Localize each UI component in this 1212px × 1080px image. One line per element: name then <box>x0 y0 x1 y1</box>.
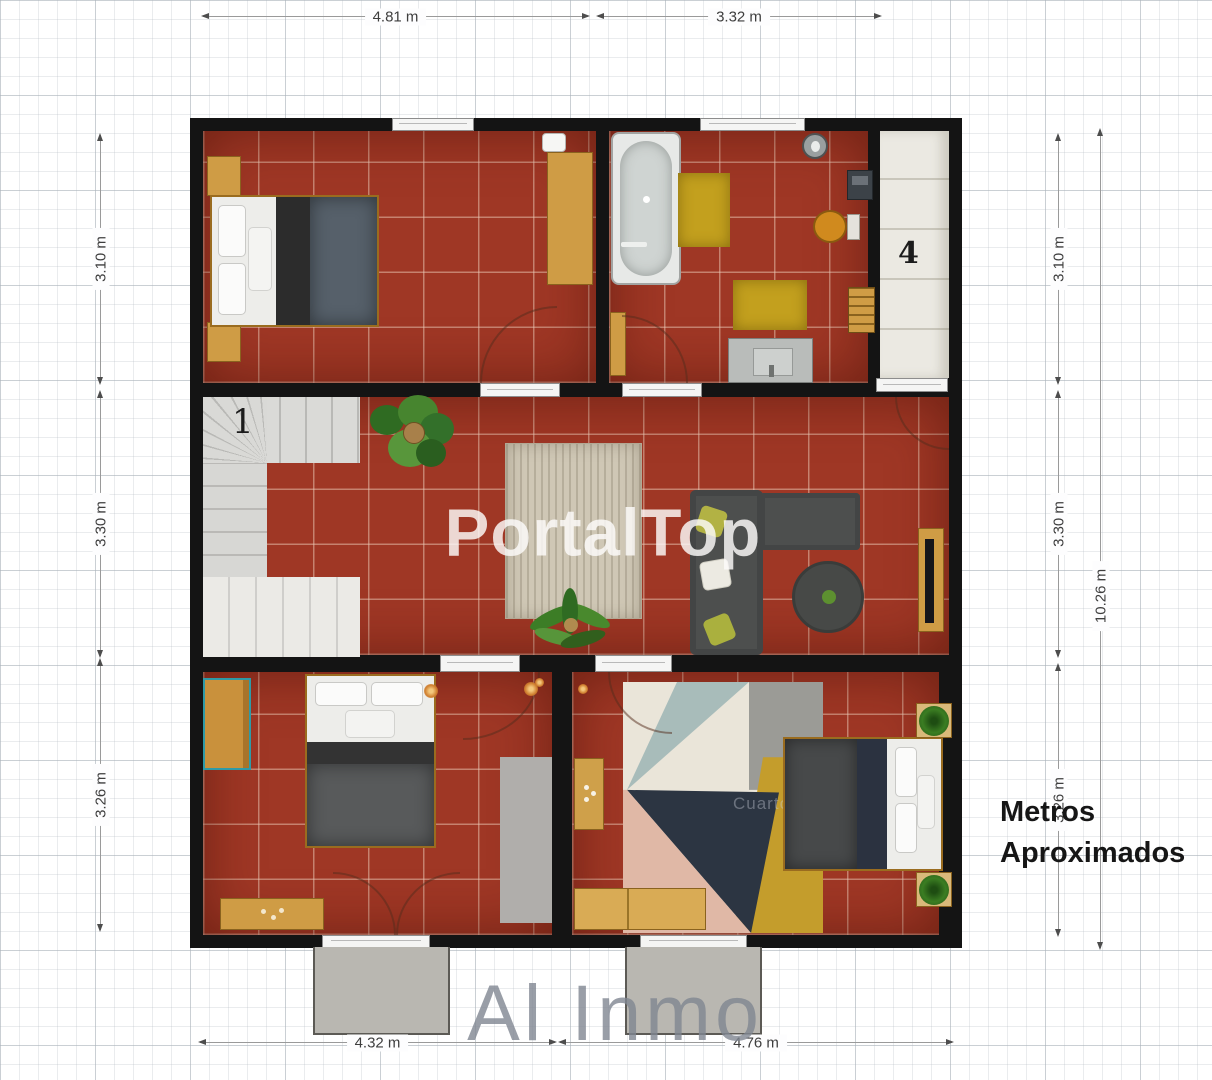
dimension-label: 4.81 m <box>365 9 427 26</box>
stairs-left-run <box>203 463 267 577</box>
floorplan-canvas: 4 1 <box>0 0 1212 1080</box>
watermark-al-inmo: Al Inmo <box>467 967 763 1059</box>
plant-mat <box>916 703 952 738</box>
dimension-label: 10.26 m <box>1093 561 1110 631</box>
bed-pillow-area <box>307 676 434 742</box>
nightstand <box>207 322 241 362</box>
dimension-label: 3.30 m <box>93 493 110 555</box>
balcony <box>313 947 450 1035</box>
round-coffee-table <box>792 561 864 633</box>
low-shelf <box>574 888 706 930</box>
nightstand <box>207 156 241 196</box>
bath-scale <box>847 170 873 200</box>
door-opening <box>480 383 560 397</box>
bath-rug <box>678 173 730 247</box>
dimension-right-2: 3.30 m <box>1058 392 1059 656</box>
double-bed <box>305 674 436 848</box>
watermark-portaltop: PortalTop <box>445 495 762 572</box>
approx-note-line2: Aproximados <box>1000 833 1185 874</box>
toilet <box>813 210 847 243</box>
dimension-label: 3.26 m <box>93 764 110 826</box>
bed-pillow-area <box>887 739 941 869</box>
monstera-plant <box>370 395 455 475</box>
bed-dark-fold <box>276 197 310 325</box>
closet-mat <box>500 757 552 923</box>
tv-console <box>918 528 944 632</box>
ceiling-light-dot <box>578 684 588 694</box>
approx-note-line1: Metros <box>1000 792 1185 833</box>
bed-throw <box>857 739 887 869</box>
dresser <box>220 898 324 930</box>
approx-note: Metros Aproximados <box>1000 792 1185 874</box>
double-bed <box>210 195 379 327</box>
dimension-left-2: 3.30 m <box>100 392 101 656</box>
window <box>392 118 474 131</box>
door-opening <box>595 655 672 672</box>
dimension-label: 3.32 m <box>708 9 770 26</box>
door-opening <box>440 655 520 672</box>
dimension-label: 3.10 m <box>1051 228 1068 290</box>
dimension-label: 4.32 m <box>347 1035 409 1052</box>
dimension-top-right: 3.32 m <box>598 16 880 17</box>
plant-mat <box>916 872 952 907</box>
bed-pillow-area <box>212 197 276 325</box>
stairs-number: 1 <box>232 402 254 442</box>
desk <box>574 758 604 830</box>
dimension-label: 3.30 m <box>1051 493 1068 555</box>
sofa-seat <box>760 493 860 550</box>
potted-plant <box>919 875 949 905</box>
wardrobe <box>203 678 251 770</box>
dimension-top-left: 4.81 m <box>203 16 588 17</box>
potted-plant <box>919 706 949 736</box>
dimension-label: 3.10 m <box>93 228 110 290</box>
desk <box>547 152 593 285</box>
dimension-left-1: 3.10 m <box>100 135 101 383</box>
toilet-tank <box>847 214 860 240</box>
stairs-top-run <box>203 397 360 463</box>
bath-rug <box>733 280 807 330</box>
bathtub <box>611 132 681 285</box>
bed-blanket <box>310 197 377 325</box>
room-watermark: Cuarto <box>733 794 790 814</box>
desk-lamp <box>542 133 566 152</box>
ceiling-light <box>802 133 828 159</box>
dimension-right-1: 3.10 m <box>1058 135 1059 383</box>
window <box>700 118 805 131</box>
double-bed <box>783 737 943 871</box>
sink-vanity <box>728 338 813 383</box>
bed-blanket <box>307 764 434 846</box>
light-glow <box>424 684 438 698</box>
bed-dark-fold <box>307 742 434 764</box>
door-opening <box>622 383 702 397</box>
light-glow <box>524 682 538 696</box>
stairs-bottom-run <box>203 577 360 657</box>
towel-ladder <box>848 287 875 333</box>
tv-screen <box>925 539 934 623</box>
closet-number: 4 <box>898 236 919 271</box>
bed-blanket <box>785 739 857 869</box>
dimension-left-3: 3.26 m <box>100 660 101 930</box>
closet-window <box>876 378 948 392</box>
